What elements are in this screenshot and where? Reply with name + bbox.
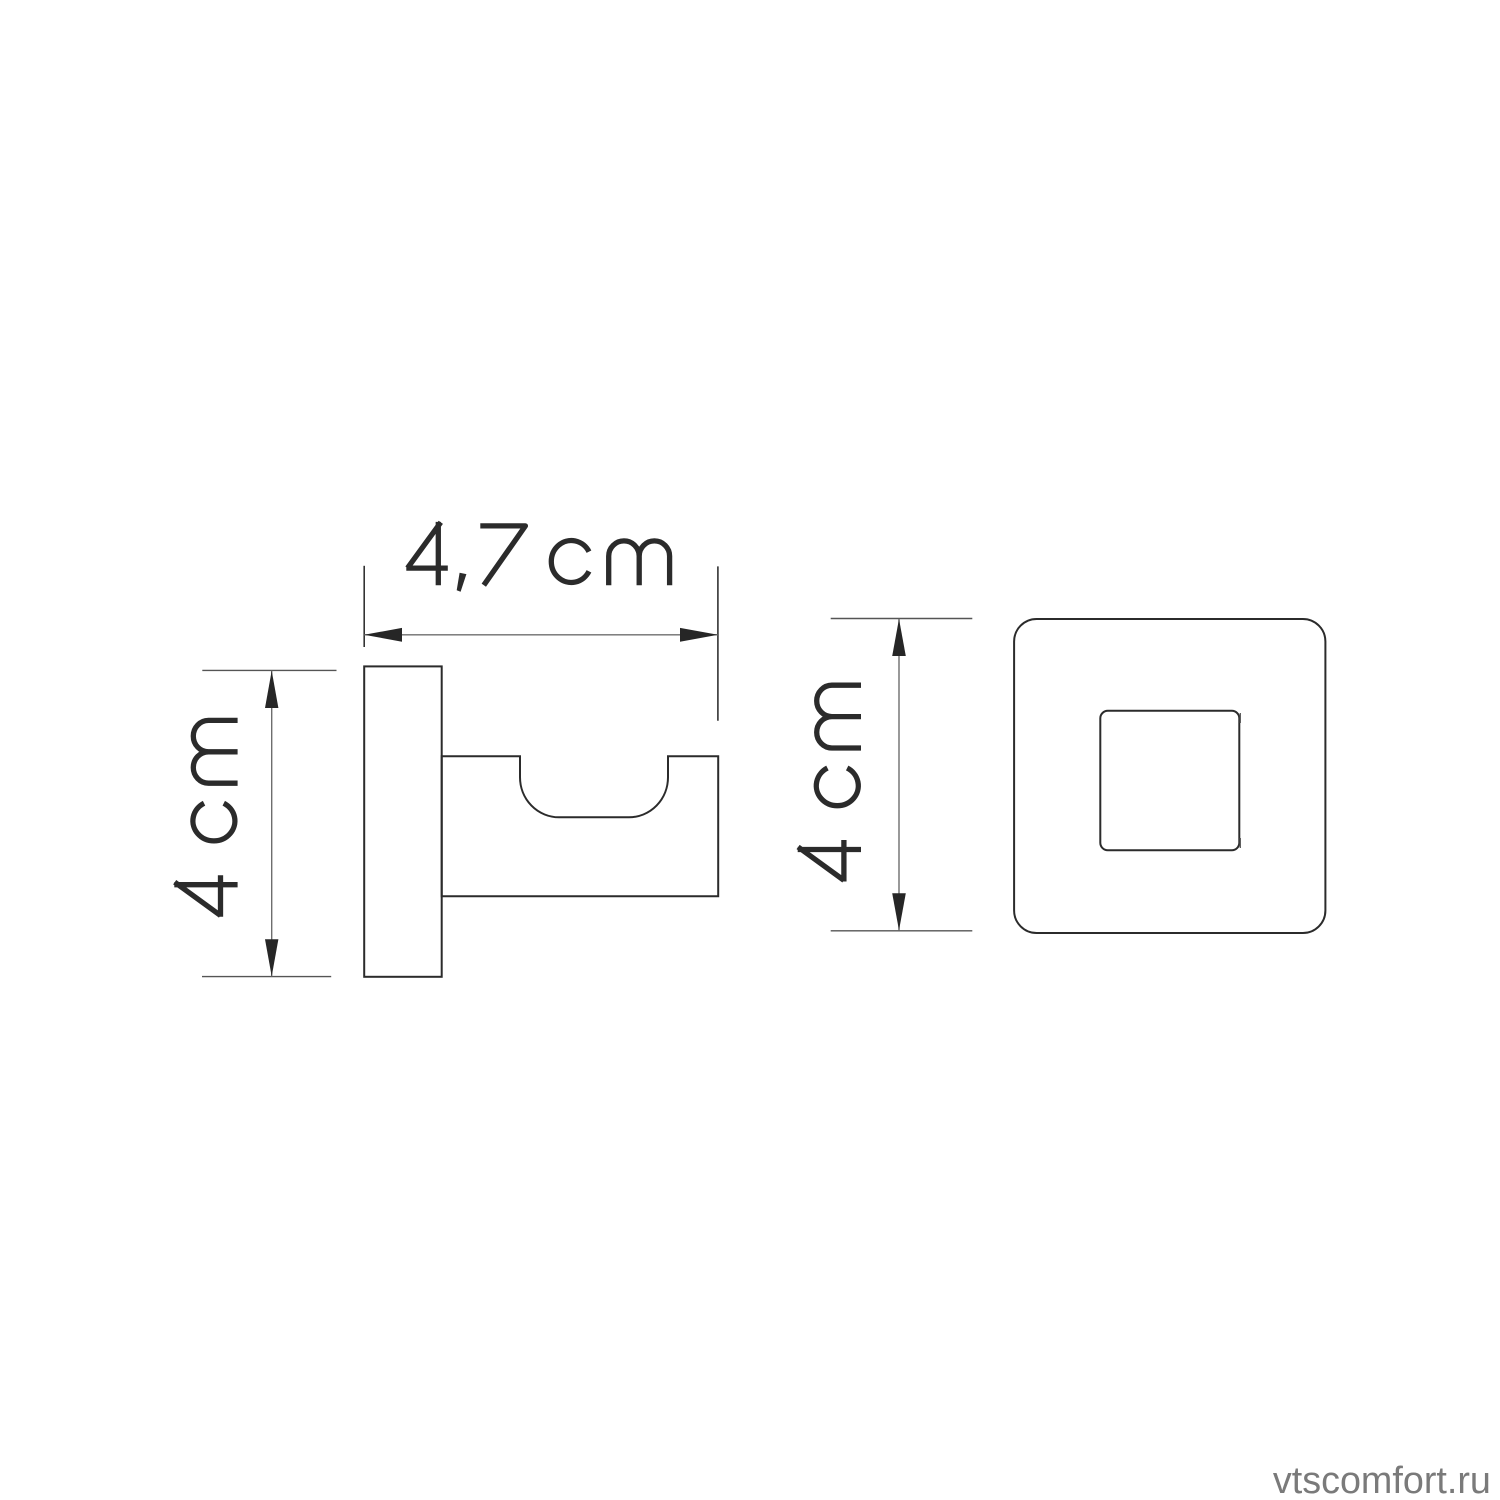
svg-text:vtscomfort.ru: vtscomfort.ru (1273, 1460, 1491, 1500)
